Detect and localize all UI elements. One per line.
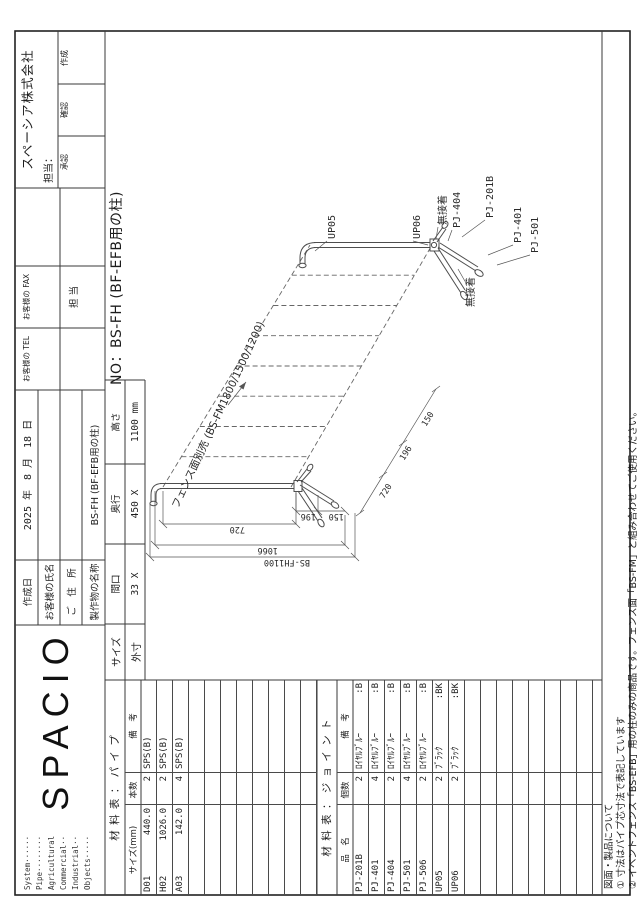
pipe-table-title: 材 料 表 ： パ イ プ bbox=[105, 680, 125, 895]
label-up05: UP05 bbox=[327, 215, 338, 239]
table-row bbox=[237, 680, 253, 895]
note-line: ① 寸法はパイプ芯寸法で表記しています bbox=[616, 199, 628, 889]
logo-spacio: SPACIO bbox=[30, 627, 82, 813]
dim-height: BS-FH1100 bbox=[264, 557, 310, 567]
label-glue2: 無接着 bbox=[464, 277, 477, 307]
joint-table-body: PJ-201B2ﾛｲﾔﾙﾌﾞﾙｰ:BPJ-4014ﾛｲﾔﾙﾌﾞﾙｰ:BPJ-40… bbox=[353, 680, 602, 895]
dim-720-vertical: 720 bbox=[230, 524, 245, 534]
catalog-list-item: Pipe········ bbox=[34, 808, 46, 890]
customer-tel-label: お客様の TEL bbox=[22, 329, 31, 389]
address-value bbox=[60, 392, 82, 558]
table-row: PJ-4042ﾛｲﾔﾙﾌﾞﾙｰ:B bbox=[385, 680, 401, 895]
customer-fax-label: お客様の FAX bbox=[22, 267, 31, 327]
label-up06: UP06 bbox=[412, 215, 423, 239]
table-row bbox=[577, 680, 593, 895]
pipe-header-size: サイズ(mm) bbox=[125, 805, 141, 895]
label-pj404: PJ-404 bbox=[452, 192, 463, 228]
joint-header-qty: 個数 bbox=[337, 773, 353, 805]
notes-block: 図面・製品について ① 寸法はパイプ芯寸法で表記しています② イベントフェンス「… bbox=[604, 199, 640, 889]
drawing-labels: UP05 UP06 無接着 PJ-404 PJ-201B 無接着 PJ-401 … bbox=[169, 176, 541, 510]
company-name: スペーシア株式会社 bbox=[17, 33, 36, 186]
pipe-table-header: サイズ(mm) 本数 備 考 bbox=[125, 680, 141, 895]
table-row bbox=[593, 680, 602, 895]
table-row bbox=[465, 680, 481, 895]
catalog-list-item: Industrial·· bbox=[70, 808, 82, 890]
table-row: A03142.04SPS(B) bbox=[173, 680, 189, 895]
size-col-header: 高さ bbox=[105, 380, 125, 464]
table-row bbox=[253, 680, 269, 895]
size-label: サイズ bbox=[105, 625, 125, 679]
size-col-value: 33 X bbox=[125, 544, 145, 624]
table-row: D01440.02SPS(B) bbox=[141, 680, 157, 895]
dim-196-vertical: 196 bbox=[301, 511, 316, 521]
dim-150-vertical: 150 bbox=[329, 511, 344, 521]
created-date-value: 2025 年 8 月 18 日 bbox=[15, 392, 38, 558]
table-row bbox=[561, 680, 577, 895]
size-col-value: 450 X bbox=[125, 464, 145, 544]
outer-dim-label: 外寸 bbox=[125, 625, 145, 679]
catalog-list-item: Agricultural bbox=[46, 808, 58, 890]
table-row: H021026.02SPS(B) bbox=[157, 680, 173, 895]
table-row bbox=[481, 680, 497, 895]
pipe-header-note: 備 考 bbox=[125, 680, 141, 773]
label-glue1: 無接着 bbox=[436, 195, 449, 225]
table-row bbox=[301, 680, 317, 895]
table-row: PJ-201B2ﾛｲﾔﾙﾌﾞﾙｰ:B bbox=[353, 680, 369, 895]
approval-cell-label: 作成 bbox=[59, 32, 73, 84]
size-col-header: 間口 bbox=[105, 544, 125, 624]
table-row: PJ-4014ﾛｲﾔﾙﾌﾞﾙｰ:B bbox=[369, 680, 385, 895]
product-name-label: 製作物の名称 bbox=[82, 561, 105, 623]
fence-sold-separately-note: フェンス面別売 (BS-FM1800/1500/1200) bbox=[169, 319, 267, 510]
table-row bbox=[285, 680, 301, 895]
pipe-table-body: D01440.02SPS(B)H021026.02SPS(B)A03142.04… bbox=[141, 680, 317, 895]
table-row bbox=[513, 680, 529, 895]
customer-name-label: お客様の氏名 bbox=[38, 561, 60, 623]
address-label: ご 住 所 bbox=[60, 561, 82, 623]
customer-name-value bbox=[38, 392, 60, 558]
catalog-list-item: System······ bbox=[22, 808, 34, 890]
size-col-header: 奥行 bbox=[105, 464, 125, 544]
table-row: UP052ﾌﾞﾗｯｸ:BK bbox=[433, 680, 449, 895]
notes-title: 図面・製品について bbox=[604, 199, 616, 889]
table-row: UP062ﾌﾞﾗｯｸ:BK bbox=[449, 680, 465, 895]
table-row: PJ-5062ﾛｲﾔﾙﾌﾞﾙｰ:B bbox=[417, 680, 433, 895]
screenshot-viewport: UP05 UP06 無接着 PJ-404 PJ-201B 無接着 PJ-401 … bbox=[0, 0, 640, 905]
table-row bbox=[529, 680, 545, 895]
joint-table-header: 品 名 個数 備 考 bbox=[337, 680, 353, 895]
table-row bbox=[269, 680, 285, 895]
joint-header-note: 備 考 bbox=[337, 680, 353, 773]
joint-table-title: 材 料 表 ： ジ ョ イ ン ト bbox=[317, 680, 337, 895]
catalog-list-item: Commercial·· bbox=[58, 808, 70, 890]
note-line: ② イベントフェンス「BS-EFB」用の柱のみの商品です。フェンス面「BS-FM… bbox=[628, 199, 640, 889]
approval-cell-label: 承認 bbox=[59, 136, 73, 188]
pipe-header-qty: 本数 bbox=[125, 773, 141, 805]
dim-1066: 1066 bbox=[258, 545, 278, 555]
size-col-value: 1100 mm bbox=[125, 380, 145, 464]
created-date-label: 作成日 bbox=[15, 561, 38, 623]
joint-header-name: 品 名 bbox=[337, 805, 353, 895]
table-row bbox=[221, 680, 237, 895]
notes-items: ① 寸法はパイプ芯寸法で表記しています② イベントフェンス「BS-EFB」用の柱… bbox=[616, 199, 640, 889]
drawing-sheet: UP05 UP06 無接着 PJ-404 PJ-201B 無接着 PJ-401 … bbox=[0, 0, 640, 905]
drawing-number: NO：BS-FH (BF-EFB用の柱) bbox=[106, 31, 128, 385]
label-pj501: PJ-501 bbox=[530, 217, 541, 253]
table-row: PJ-5014ﾛｲﾔﾙﾌﾞﾙｰ:B bbox=[401, 680, 417, 895]
label-pj201b: PJ-201B bbox=[485, 176, 496, 218]
table-row bbox=[545, 680, 561, 895]
label-pj401: PJ-401 bbox=[513, 207, 524, 243]
catalog-list-item: Objects····· bbox=[82, 808, 94, 890]
catalog-category-list: System······Pipe········AgriculturalComm… bbox=[22, 808, 94, 890]
company-tanto-label: 担当： bbox=[40, 30, 55, 186]
product-name-value: BS-FH (BF-EFB用の柱) bbox=[82, 392, 105, 558]
approval-cell-label: 確認 bbox=[59, 84, 73, 136]
contact-person-label: 担 当 bbox=[66, 267, 80, 327]
table-row bbox=[497, 680, 513, 895]
table-row bbox=[205, 680, 221, 895]
table-row bbox=[189, 680, 205, 895]
dim-720-diagonal: 720 bbox=[378, 482, 395, 500]
leader-arrowhead bbox=[239, 382, 246, 390]
dim-150-diagonal: 150 bbox=[420, 410, 437, 428]
